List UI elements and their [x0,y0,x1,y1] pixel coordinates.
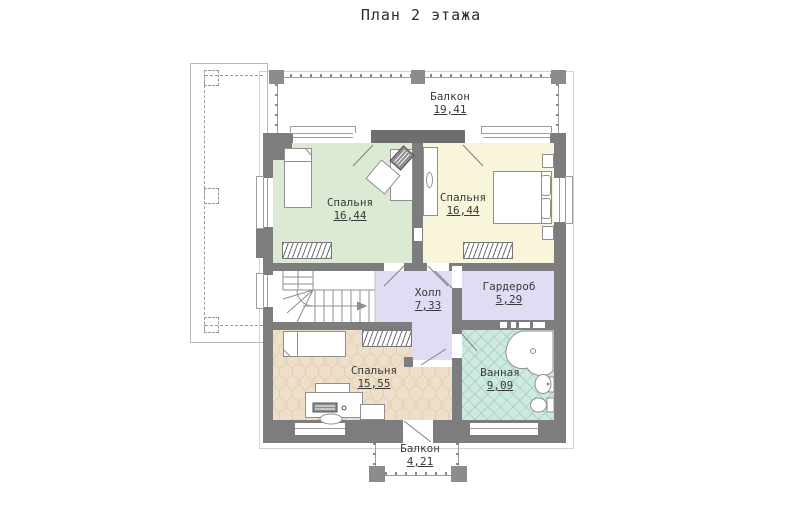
staircase-symbol [283,271,375,322]
room-label-wardrobe: Гардероб 5,29 [464,280,554,306]
room-label-hall: Холл 7,33 [383,286,473,312]
desk-items [313,403,346,424]
room-label-bathroom: Ванная 9,09 [455,366,545,392]
toilet-symbol [531,398,555,412]
room-label-bedroom-bottom: Спальня 15,55 [329,364,419,390]
bed-fold-marks [283,148,312,357]
room-label-balcony-bottom: Балкон 4,21 [375,442,465,468]
linework-overlay [0,0,800,517]
floor-plan: План 2 этажа [0,0,800,517]
laptop-symbol [390,146,414,170]
room-label-bedroom-left: Спальня 16,44 [305,196,395,222]
room-label-bedroom-right: Спальня 16,44 [418,191,508,217]
room-label-balcony-top: Балкон 19,41 [405,90,495,116]
